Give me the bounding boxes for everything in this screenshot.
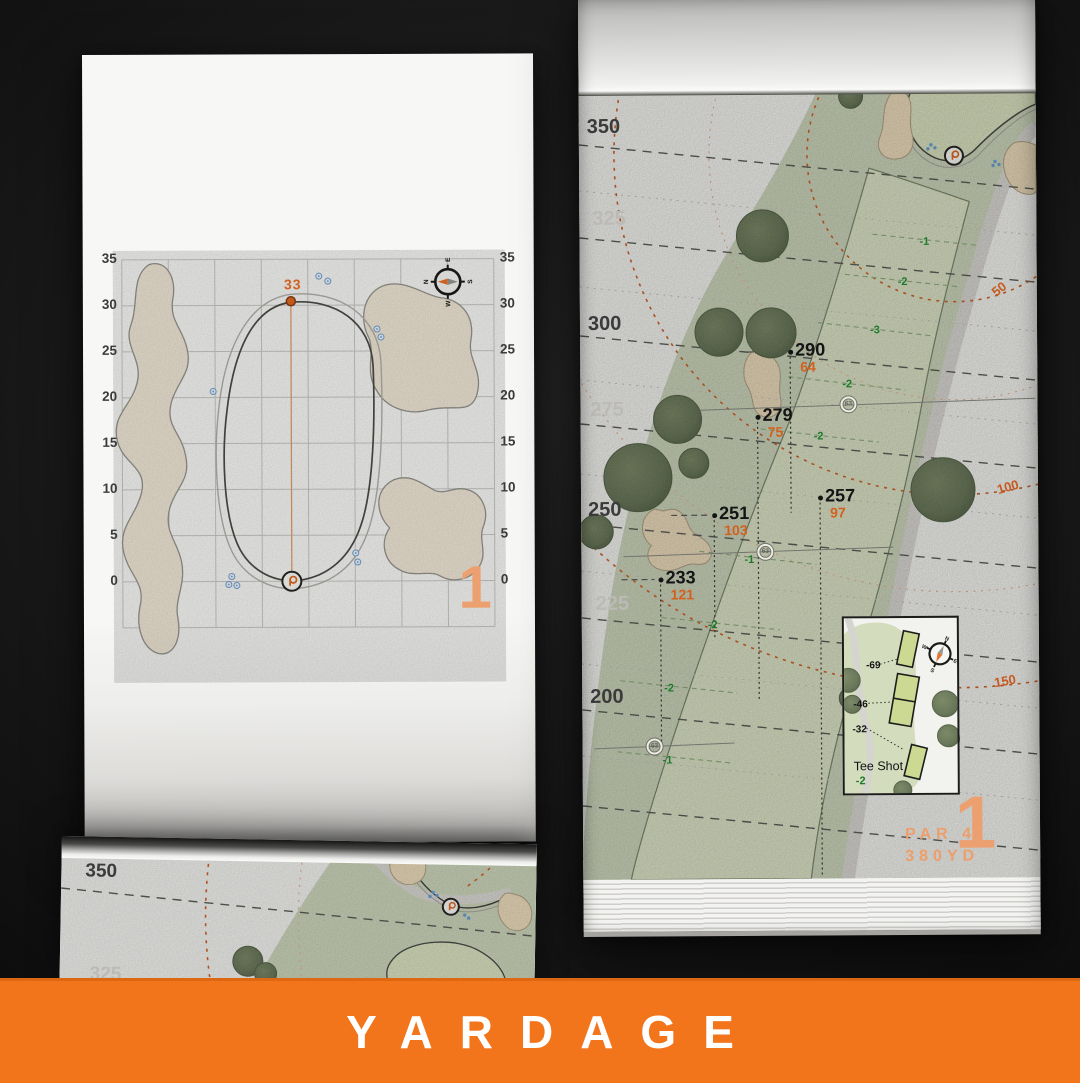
paper-grain xyxy=(579,90,1041,880)
tee-shot-slope: -2 xyxy=(856,775,866,787)
green-map-graphic: N E S W xyxy=(82,53,536,843)
inset-compass-rose: N E S W xyxy=(913,628,958,681)
green-detail-page: N E S W 3535303025252020151510105500 33 … xyxy=(82,53,536,843)
page-curl xyxy=(578,0,1036,96)
tee-shot-title: Tee Shot xyxy=(854,759,903,773)
page-stack-ridges xyxy=(583,877,1040,937)
paper-grain xyxy=(113,250,507,683)
hole-number: 1 xyxy=(436,558,492,618)
banner-title: YARDAGE xyxy=(319,1005,761,1059)
inset-compass-n: N xyxy=(944,636,950,643)
tee-shot-inset: N E S W -69-46-32 Tee Shot -2 xyxy=(842,616,960,796)
yardage-book-mockup: N E S W 3535303025252020151510105500 33 … xyxy=(0,0,1080,1080)
yardage-banner: YARDAGE xyxy=(0,978,1080,1083)
inset-compass-s: S xyxy=(929,668,935,675)
next-page-preview: 350325 xyxy=(59,836,536,988)
hole-number: 1 xyxy=(955,785,1005,859)
pin-distance-label: 33 xyxy=(279,276,307,292)
hole-map-page: 3503253002752502252005010015029064279752… xyxy=(578,0,1041,932)
